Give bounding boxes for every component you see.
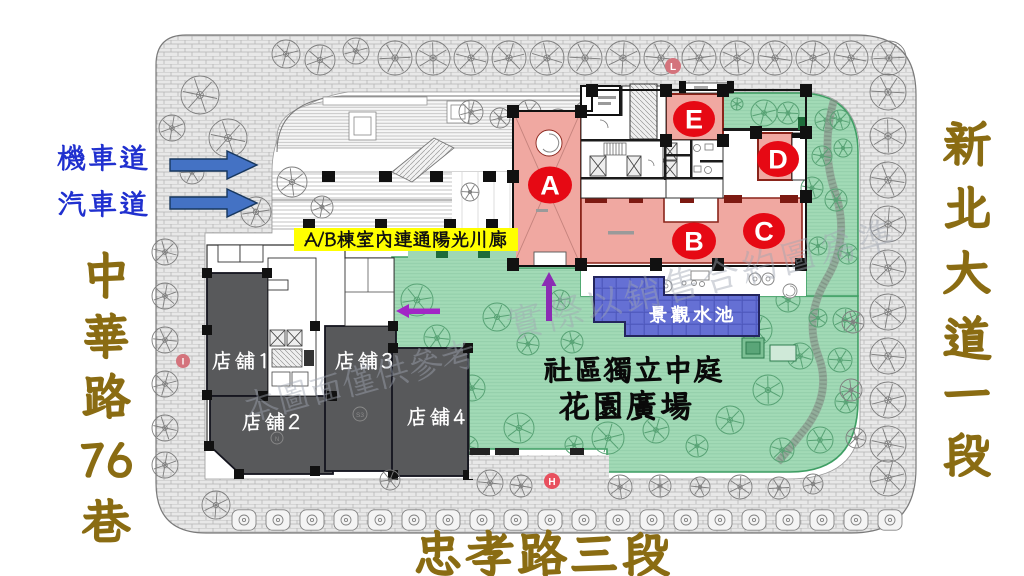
svg-text:E: E: [685, 105, 703, 135]
svg-text:S3: S3: [356, 412, 364, 419]
svg-text:C: C: [754, 217, 774, 247]
svg-text:I: I: [182, 357, 185, 367]
svg-text:H: H: [548, 477, 555, 488]
svg-text:A: A: [540, 171, 560, 201]
svg-text:B: B: [684, 227, 704, 257]
svg-text:L: L: [670, 62, 676, 73]
svg-text:N: N: [275, 437, 279, 443]
svg-text:D: D: [768, 145, 788, 175]
